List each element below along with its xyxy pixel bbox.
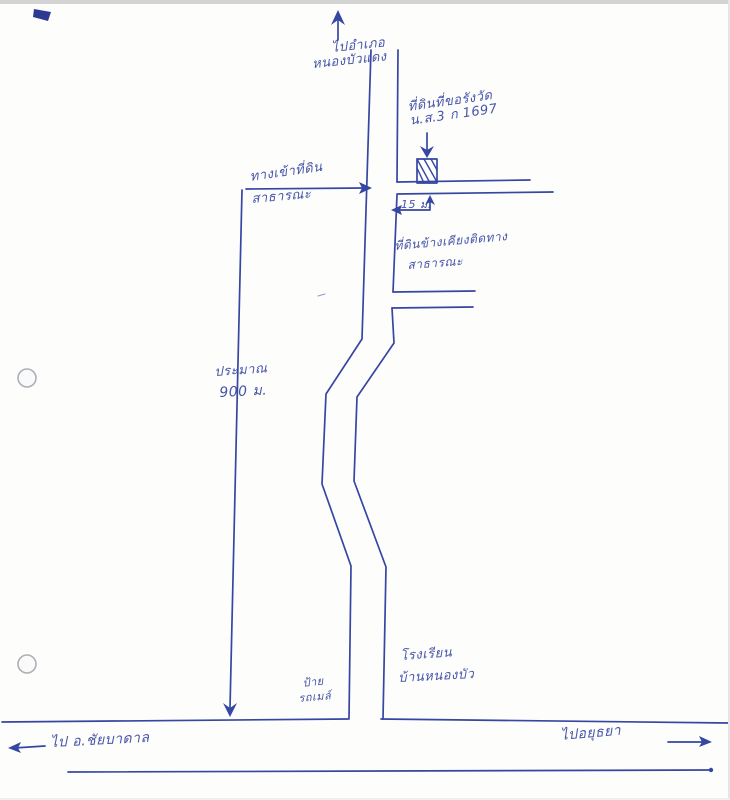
side-road-1-lower-edge [397,192,553,194]
subject-parcel-hatch [417,159,437,183]
punch-hole-bottom [18,655,36,673]
bottom-road-top-edge-east [381,719,729,723]
distance-label-value: 900 ม. [219,383,268,401]
distance-dimension-line [230,190,242,708]
side-road-2-upper-edge [393,291,475,292]
subject-parcel-box [417,159,437,183]
main-road-left-edge [322,50,371,719]
side-road-2-lower-edge [392,307,473,308]
punch-hole-top [18,369,36,387]
pen-dot [709,768,713,772]
stray-pen-mark [318,294,325,296]
bottom-road-bottom-edge [68,770,710,772]
main-road-right-edge-upper [397,50,398,182]
bottom-road-top-edge-west [2,719,348,722]
bus-stop-label-line1: ป้าย [302,675,324,690]
width-dimension-label: 15 ม. [401,199,432,211]
main-road-right-edge-lower [354,308,394,719]
sketch-linework [0,0,730,800]
corner-ink-blot [33,9,51,21]
hand-drawn-location-sketch: ไปอำเภอ หนองบัวแดง ที่ดินที่ขอรังวัด น.ส… [0,0,730,800]
scan-edge-top [0,0,730,4]
